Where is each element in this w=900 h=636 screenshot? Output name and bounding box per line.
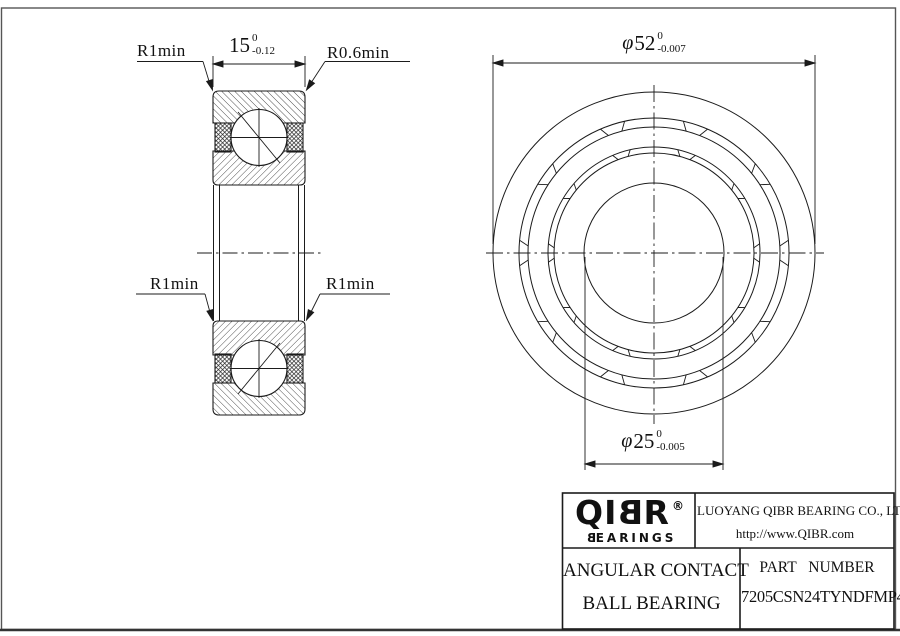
- radius-label-bottom-right: R1min: [326, 275, 375, 292]
- front-view: [486, 85, 824, 424]
- radius-label-top-left: R1min: [137, 42, 186, 59]
- diameter-symbol: φ: [622, 33, 633, 53]
- part-number-label: PART NUMBER: [741, 560, 893, 576]
- company-info: LUOYANG QIBR BEARING CO., LTD http://www…: [697, 499, 893, 545]
- brand-logo-tagline: BEARINGS: [566, 532, 694, 544]
- company-name: LUOYANG QIBR BEARING CO., LTD: [697, 499, 893, 522]
- diameter-symbol: φ: [621, 431, 632, 451]
- part-number-block: PART NUMBER 7205CSN24TYNDFMP4: [741, 560, 893, 605]
- dimension-width-tolerance: 0 -0.12: [252, 32, 275, 57]
- brand-logo: QIBR® BEARINGS: [566, 496, 694, 544]
- dimension-bore-diameter: φ 25 0 -0.005: [621, 431, 685, 453]
- dimension-width-value: 15: [229, 35, 250, 56]
- brand-logo-wordmark: QIBR®: [566, 496, 694, 529]
- engineering-drawing-page: 15 0 -0.12 R1min R0.6min R1min R1min φ 5…: [0, 0, 900, 636]
- dimension-outer-diameter: φ 52 0 -0.007: [622, 33, 686, 55]
- cross-section-view: [197, 91, 322, 415]
- product-description: ANGULAR CONTACT BALL BEARING: [563, 554, 740, 620]
- radius-label-bottom-left: R1min: [150, 275, 199, 292]
- dimension-width: 15 0 -0.12: [229, 35, 275, 57]
- radius-label-top-right: R0.6min: [327, 44, 390, 61]
- part-number-value: 7205CSN24TYNDFMP4: [741, 589, 893, 606]
- company-website: http://www.QIBR.com: [697, 522, 893, 545]
- registered-trademark-symbol: ®: [672, 499, 685, 513]
